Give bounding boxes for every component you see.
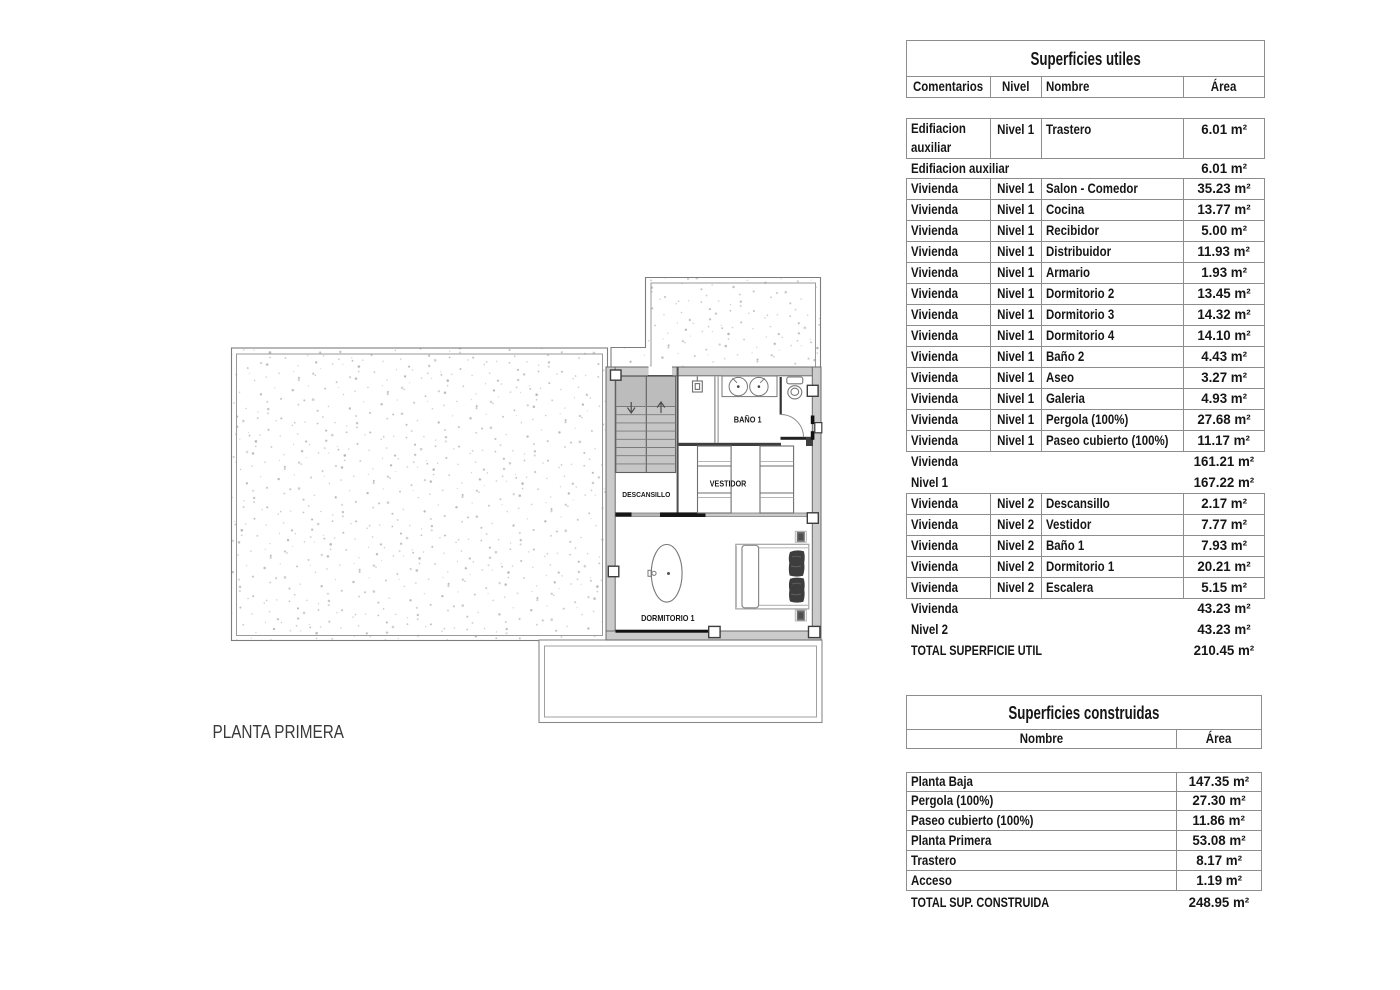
svg-text:VESTIDOR: VESTIDOR bbox=[710, 478, 747, 488]
svg-text:DESCANSILLO: DESCANSILLO bbox=[622, 490, 670, 499]
svg-text:PLANTA PRIMERA: PLANTA PRIMERA bbox=[213, 722, 345, 742]
svg-text:BAÑO 1: BAÑO 1 bbox=[734, 415, 762, 425]
svg-text:DORMITORIO 1: DORMITORIO 1 bbox=[641, 613, 695, 623]
